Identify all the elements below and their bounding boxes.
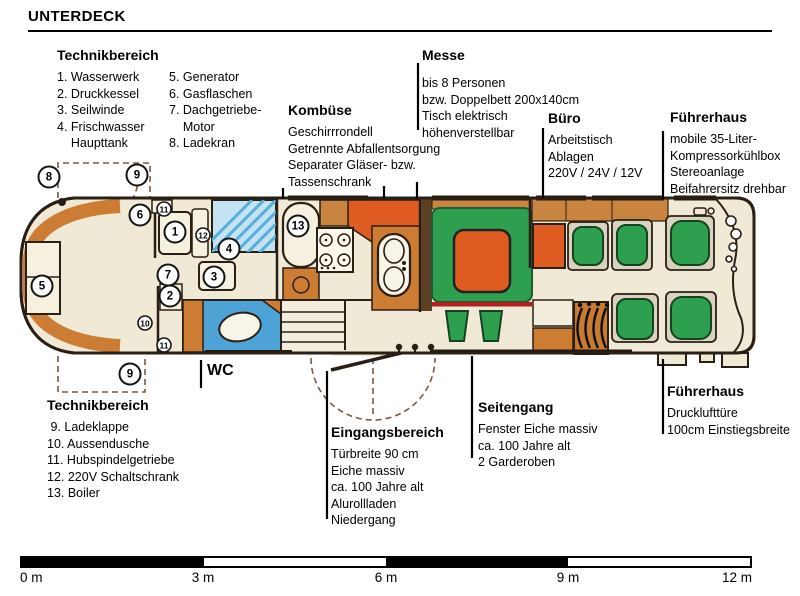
- plan-number: 5: [39, 281, 46, 293]
- scale-label-0m: 0 m: [20, 570, 43, 585]
- label-buero: Büro ArbeitstischAblagen 220V / 24V / 12…: [548, 110, 643, 182]
- tech-top-col1: 1. Wasserwerk2. Druckkessel 3. Seilwinde…: [57, 69, 155, 152]
- plan-number: 3: [211, 272, 217, 284]
- sink: [378, 234, 410, 296]
- plan-number: 12: [198, 231, 208, 241]
- plan-number: 4: [226, 244, 233, 256]
- block-title: Führerhaus: [667, 383, 790, 400]
- plan-number: 7: [165, 270, 171, 282]
- scale-segment: [568, 558, 750, 566]
- block-title: Technikbereich: [57, 47, 275, 64]
- scale-label-3m: 3 m: [192, 570, 215, 585]
- label-fuehrerhaus-bottom: Führerhaus Drucklufttüre 100cm Einstiegs…: [667, 383, 790, 438]
- block-title: Führerhaus: [670, 109, 786, 126]
- label-fuehrerhaus-top: Führerhaus mobile 35-Liter-Kompressorküh…: [670, 109, 786, 197]
- plan-number: 9: [134, 170, 140, 182]
- plan-number: 11: [160, 205, 169, 215]
- block-title: Büro: [548, 110, 643, 127]
- title-rule: [28, 30, 772, 32]
- office-chair: [573, 227, 603, 265]
- plan-number: 6: [137, 210, 143, 222]
- scale-label-12m: 12 m: [722, 570, 752, 585]
- page-title: UNTERDECK: [28, 8, 126, 25]
- plan-number: 8: [46, 172, 53, 184]
- seat: [671, 297, 711, 339]
- block-title: Seitengang: [478, 399, 597, 416]
- plan-number: 10: [140, 319, 150, 329]
- block-title: Eingangsbereich: [331, 424, 444, 441]
- stool: [446, 311, 468, 341]
- floorplan-page: 89611112457321011913 UNTERDECK Technikbe…: [0, 0, 800, 596]
- block-title: Technikbereich: [47, 397, 179, 414]
- seat: [617, 225, 647, 265]
- arbeitstisch: [533, 224, 565, 268]
- scale-segment: [386, 558, 568, 566]
- entry-step: [722, 353, 748, 367]
- scale-bar: [20, 556, 752, 568]
- label-technikbereich-bottom: Technikbereich 9. Ladeklappe10. Aussendu…: [47, 397, 179, 502]
- passenger-seat: [671, 221, 709, 265]
- scale-segment: [204, 558, 386, 566]
- stool: [480, 311, 502, 341]
- wc-label: WC: [207, 362, 234, 380]
- plan-number: 13: [292, 221, 305, 233]
- plan-number: 2: [167, 291, 173, 303]
- heater: [574, 302, 608, 354]
- driver-seat: [617, 299, 653, 339]
- label-kombuese: Kombüse GeschirrrondellGetrennte Abfalle…: [288, 102, 440, 190]
- red-floor-strip: [432, 302, 532, 307]
- label-technikbereich-top: Technikbereich 1. Wasserwerk2. Druckkess…: [57, 47, 275, 152]
- tech-top-col2: 5. Generator6. Gasflaschen 7. Dachgetrie…: [169, 69, 261, 152]
- block-title: Kombüse: [288, 102, 440, 119]
- scale-segment: [22, 558, 204, 566]
- scale-label-9m: 9 m: [557, 570, 580, 585]
- scale-label-6m: 6 m: [375, 570, 398, 585]
- messe-table: [454, 230, 510, 292]
- label-eingangsbereich: Eingangsbereich Türbreite 90 cmEiche mas…: [331, 424, 444, 529]
- plan-number: 1: [172, 227, 179, 239]
- label-seitengang: Seitengang Fenster Eiche massivca. 100 J…: [478, 399, 597, 471]
- plan-number: 9: [127, 369, 133, 381]
- plan-number: 11: [160, 341, 169, 351]
- bathroom-wc: [183, 300, 292, 352]
- block-title: Messe: [422, 47, 579, 64]
